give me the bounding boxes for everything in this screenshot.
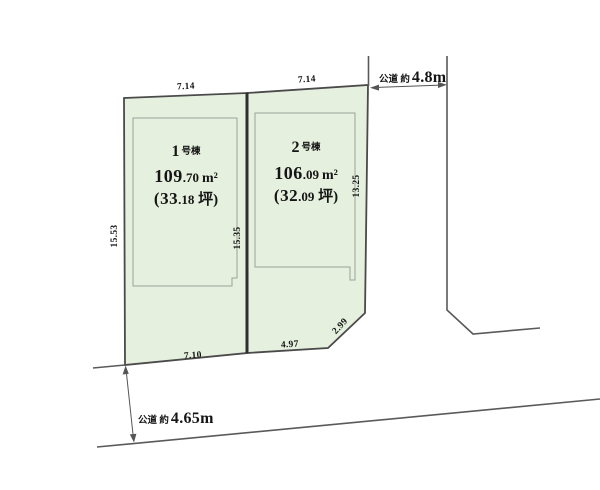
lot-2-suffix: 号棟	[301, 141, 321, 153]
right-road-right-edge	[447, 56, 540, 334]
lot-1-tsubo: (33.18 坪)	[154, 189, 218, 208]
bottom-road-width-label: 公道 約4.65m	[138, 410, 214, 427]
dim-lot2-bottom: 4.97	[281, 339, 299, 350]
dim-lot2-right: 13.25	[352, 175, 362, 198]
lot-1-suffix: 号棟	[181, 145, 201, 157]
dim-lot1-left: 15.53	[110, 225, 120, 248]
lot-1-parcel	[124, 93, 247, 365]
plot-diagram-svg: 1号棟 109.70m² (33.18 坪) 2号棟 106.09m² (32.…	[0, 0, 600, 490]
lot-2-parcel	[247, 85, 368, 353]
dim-divider: 15.35	[233, 227, 243, 250]
dim-lot1-bottom: 7.10	[184, 350, 202, 361]
dim-lot2-top: 7.14	[298, 74, 316, 85]
lot-2-number: 2	[291, 139, 299, 156]
lot-1-number: 1	[171, 143, 179, 160]
dim-lot1-top: 7.14	[177, 82, 195, 93]
land-plot-diagram: 1号棟 109.70m² (33.18 坪) 2号棟 106.09m² (32.…	[0, 0, 600, 490]
bottom-road-width-arrow	[123, 366, 137, 443]
right-road-width-label: 公道 約4.8m	[379, 69, 447, 86]
lot-2-tsubo: (32.09 坪)	[274, 186, 338, 205]
bottom-road-top-edge	[93, 365, 125, 368]
